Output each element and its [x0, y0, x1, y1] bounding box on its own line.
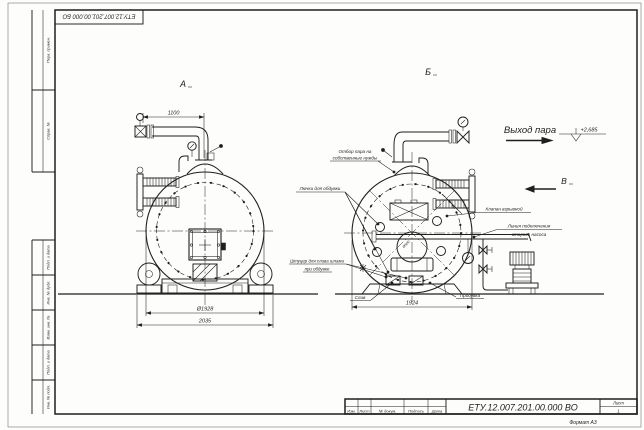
steam-out-arrow-icon	[542, 138, 552, 144]
titleblock-sheet-label: Лист	[612, 401, 624, 406]
view-b-label: Б	[425, 67, 431, 77]
view-a-label: А	[179, 79, 186, 89]
manhole-dia-text: Ø500	[401, 240, 411, 250]
title-block: Изм. Лист № докум. Подпись Дата ЕТУ.12.0…	[345, 399, 637, 426]
second-pump-line	[372, 231, 531, 290]
titleblock-col-data: Дата	[431, 409, 443, 414]
view-v-arrow-icon	[526, 186, 534, 192]
dim-base-width-text: 2035	[198, 319, 212, 325]
front-level-gauge	[137, 167, 179, 217]
dim-1100: 1100	[143, 111, 204, 159]
margin-column: Перв. примен. Справ. № Подп. и дата Инв.…	[32, 10, 55, 414]
dim-rear-width-text: 1924	[406, 301, 418, 307]
format-label: Формат А3	[569, 420, 597, 426]
sludge-line2-text: при обдувке	[305, 267, 330, 272]
front-hatch	[189, 229, 226, 260]
drawing-sheet: Перв. примен. Справ. № Подп. и дата Инв.…	[0, 0, 644, 430]
elevation-mark: +2,685	[559, 128, 606, 142]
view-v-label: В	[561, 176, 567, 186]
titleblock-col-dokum: № докум.	[379, 409, 397, 414]
titleblock-col-podp: Подпись	[408, 409, 424, 414]
steam-out-text: Выход пара	[504, 125, 556, 136]
dim-1100-text: 1100	[168, 111, 181, 117]
rear-explosion-valve	[390, 194, 462, 220]
titleblock-col-izm: Изм.	[347, 409, 356, 414]
rear-view: Ø500	[344, 117, 538, 310]
pump-assembly	[506, 252, 538, 294]
explosion-valve-text: Клапан взрывной	[485, 206, 523, 212]
drawing-sheet-svg: Перв. примен. Справ. № Подп. и дата Инв.…	[0, 0, 644, 430]
label-steam-out: Выход пара	[504, 125, 556, 144]
elevation-text: +2,685	[581, 128, 599, 134]
label-blowdown: Продувка	[429, 282, 484, 298]
front-piping	[135, 114, 222, 173]
dim-shell-dia-text: Ø1928	[196, 307, 214, 313]
top-stamp: ЕТУ.12.007.201.00.000 БО	[55, 10, 143, 24]
titleblock-col-list: Лист	[358, 409, 370, 414]
margin-cell-vzam: Взам. инв. №	[46, 315, 51, 340]
blow-hatches-text: Лючки для обдувки	[299, 186, 341, 191]
rear-piping	[382, 117, 469, 174]
margin-cell-inv-dubl: Инв. № дубл.	[46, 281, 51, 305]
margin-cell-sprav: Справ. №	[46, 121, 51, 139]
rear-level-gauge	[433, 169, 475, 219]
front-view: 1100 Ø1928 2035	[135, 111, 274, 329]
pump-line1-text: Линия подключения	[507, 224, 551, 229]
blowdown-text: Продувка	[460, 293, 481, 298]
top-stamp-code: ЕТУ.12.007.201.00.000 БО	[62, 13, 135, 19]
drain-text: Слив	[355, 295, 366, 300]
label-pump-line: Линия подключения второго насоса	[473, 224, 562, 238]
margin-cell-inv-podl: Инв. № подл.	[46, 385, 51, 409]
titleblock-doc-code: ЕТУ.12.007.201.00.000 ВО	[468, 403, 577, 413]
annotations: Отбор пара на собственные нужды Лючки дл…	[179, 67, 606, 301]
titleblock-sheet-number: 1	[617, 409, 620, 414]
label-own-needs: Отбор пара на собственные нужды	[330, 149, 395, 173]
margin-cell-podp2: Подп. и дата	[46, 349, 51, 374]
pump-line2-text: второго насоса	[512, 232, 547, 237]
sheet-border	[8, 3, 641, 427]
own-needs-line1-text: Отбор пара на	[339, 149, 372, 154]
margin-cell-perv: Перв. примен.	[46, 37, 51, 63]
margin-cell-podp1: Подп. и дата	[46, 244, 51, 269]
own-needs-line2-text: собственные нужды	[333, 156, 378, 161]
sludge-line1-text: Штуцер для слива шлама	[290, 259, 344, 264]
